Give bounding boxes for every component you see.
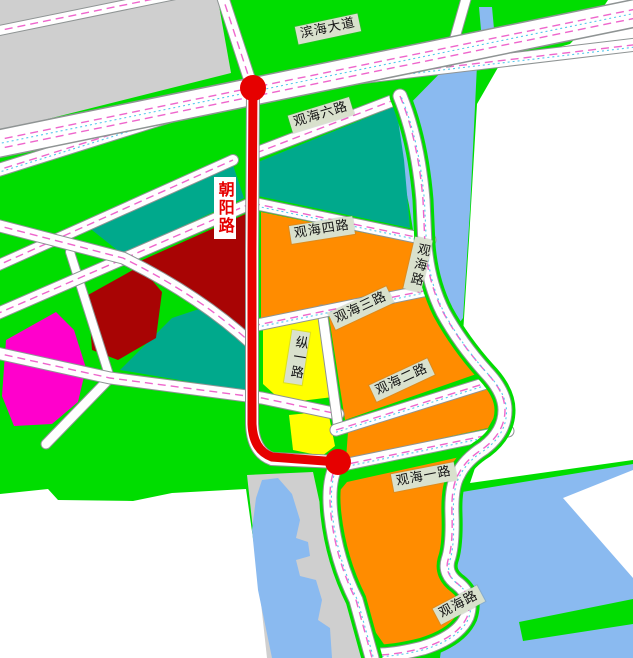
out-of-plan-bottom-left: [0, 489, 270, 658]
map-canvas: [0, 0, 633, 658]
route-endpoint-south: [325, 449, 351, 475]
label-chaoyang-road: 朝阳路: [214, 177, 236, 239]
planning-map: 滨海大道 观海六路 朝阳路 观海四路 观海路 观海三路 纵一路 观海二路 观海一…: [0, 0, 633, 658]
route-endpoint-north: [240, 75, 266, 101]
